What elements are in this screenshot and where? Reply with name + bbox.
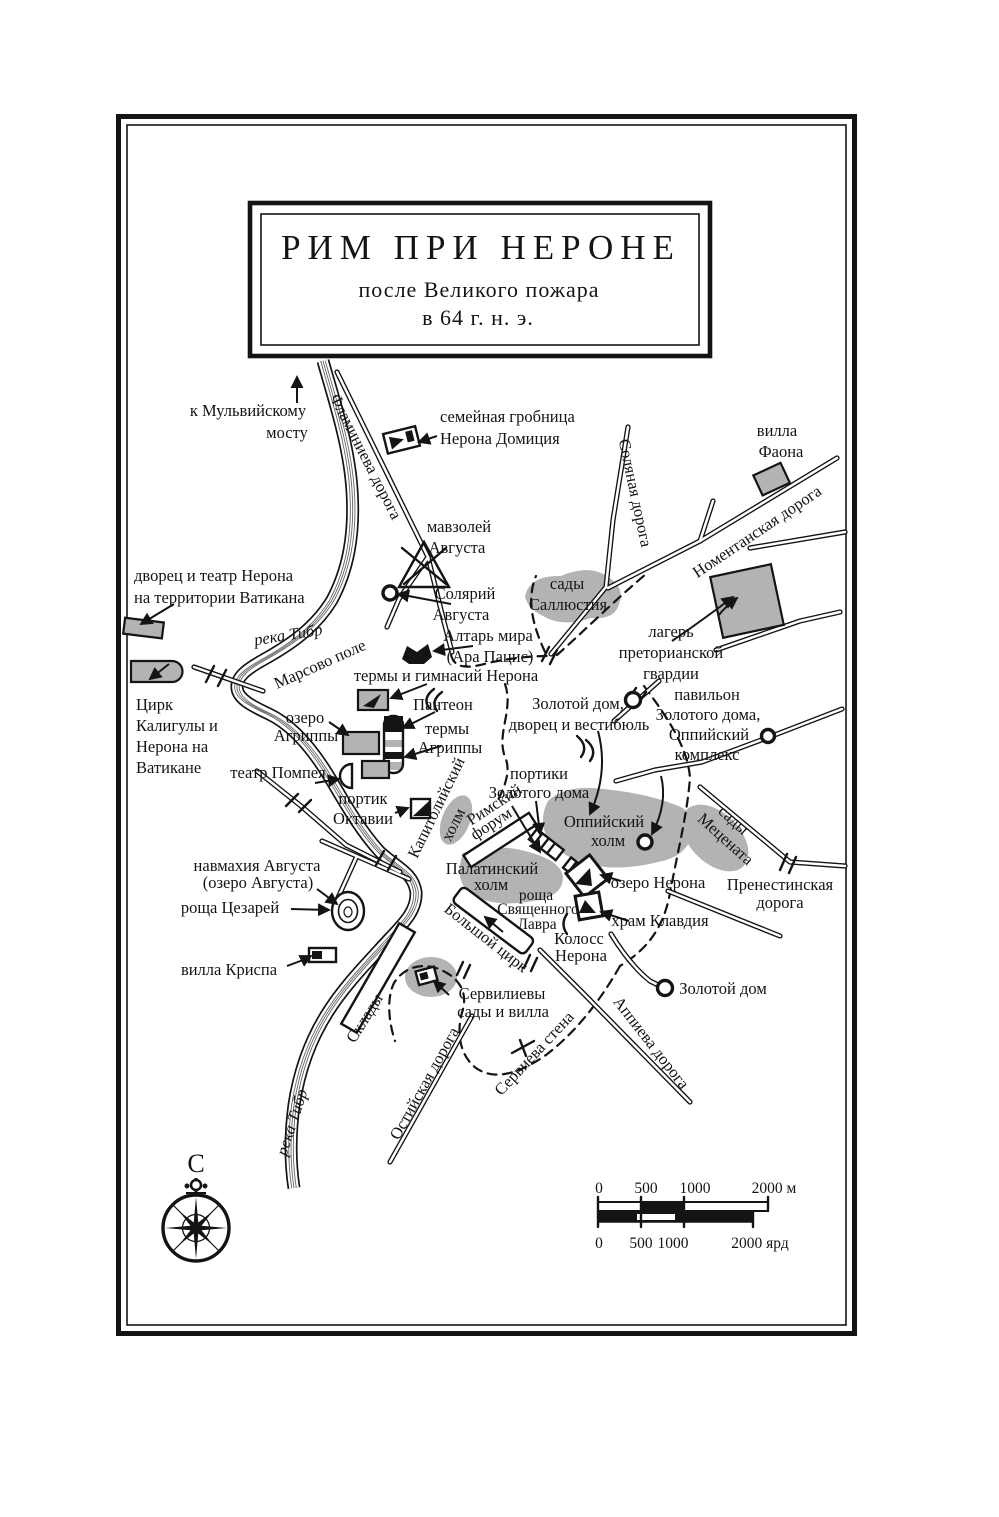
compass-finial-knob: [191, 1180, 201, 1190]
pantheon-label: Пантеон: [413, 695, 473, 714]
nero-palace-label-1: дворец и театр Нерона: [134, 566, 294, 585]
agrippa-lake-label-1: озеро: [286, 708, 325, 727]
compass-finial-left-bud: [185, 1184, 190, 1189]
agrippa-lake-basin: [343, 732, 379, 754]
villa-crispa-leader: [287, 956, 311, 966]
flaminia-road-label: Фламиниева дорога: [326, 391, 406, 523]
villa-crispa-label: вилла Криспа: [181, 960, 278, 979]
family-tomb-label-1: семейная гробница: [440, 407, 575, 426]
villa-crispa-structure: [309, 948, 336, 962]
praenestina-label-2: дорога: [756, 893, 804, 912]
scale-m-2000: 2000 м: [752, 1180, 797, 1197]
compass-rose: С: [163, 1149, 229, 1261]
octavia-portico-label-2: Октавии: [333, 809, 393, 828]
claudius-temple-label: храм Клавдия: [611, 911, 709, 930]
arch-marks-east: [577, 736, 593, 761]
scale-yd-1000: 1000: [658, 1235, 689, 1252]
golden-house-label: Золотой дом: [679, 979, 767, 998]
pavilion-label-3: Оппийский: [669, 725, 749, 744]
servilian-label-2: сады и вилла: [457, 1002, 549, 1021]
scale-yards-white-segment: [637, 1214, 675, 1220]
praetorian-camp-label-2: преторианской: [619, 643, 724, 662]
nero-baths-structure: [358, 690, 388, 710]
agrippa-baths-label-1: термы: [425, 719, 469, 738]
compass-hub: [193, 1225, 199, 1231]
caesars-grove-label: роща Цезарей: [181, 898, 280, 917]
oppian-hill-label-1: Оппийский: [564, 812, 644, 831]
octavia-portico-label-1: портик: [338, 789, 388, 808]
scale-bar: 0 500 1000 2000 м 0 500 1000 2000 ярд: [595, 1180, 796, 1252]
servilian-label-1: Сервилиевы: [459, 984, 546, 1003]
agrippa-lake-label-2: Агриппы: [274, 726, 339, 745]
mausoleum-label-2: Августа: [429, 538, 486, 557]
oppian-hill-marker: [638, 835, 652, 849]
map-page: РИМ ПРИ НЕРОНЕ после Великого пожара в 6…: [0, 0, 999, 1517]
scale-m-0: 0: [595, 1180, 603, 1197]
mausoleum-label-1: мавзолей: [427, 517, 491, 536]
title-box: РИМ ПРИ НЕРОНЕ после Великого пожара в 6…: [250, 203, 710, 356]
pavilion-label-2: Золотого дома,: [656, 705, 761, 724]
compass-north-label: С: [187, 1149, 204, 1178]
compass-finial-right-bud: [203, 1184, 208, 1189]
map-labels: к Мульвийскому мосту Фламиниева дорога с…: [134, 391, 834, 1159]
circus-caligula-structure: [131, 661, 183, 682]
nero-palace-label-2: на территории Ватикана: [134, 588, 305, 607]
golden-house-marker: [658, 981, 673, 996]
oppian-complex-marker: [762, 730, 775, 743]
solarium-marker: [383, 586, 397, 600]
naumachia-structure: [332, 892, 364, 930]
agrippa-baths-band2: [384, 752, 403, 759]
salaria-road-label: Соляная дорога: [615, 437, 657, 549]
oppian-hill-label-2: холм: [591, 831, 626, 850]
octavia-portico-leader: [395, 808, 408, 813]
scale-m-1000: 1000: [680, 1180, 711, 1197]
sallust-gardens-label-2: Саллюстия: [529, 595, 608, 614]
rome-nero-map: РИМ ПРИ НЕРОНЕ после Великого пожара в 6…: [0, 0, 999, 1517]
golden-house-road: [611, 934, 662, 987]
nero-lake-label: озеро Нерона: [611, 873, 706, 892]
map-title: РИМ ПРИ НЕРОНЕ: [281, 228, 681, 267]
pompey-portico-building: [362, 761, 389, 778]
appia-road-label: Аппиева дорога: [609, 993, 693, 1093]
villa-crispa-block: [312, 951, 322, 959]
nero-palace-vatican-structure: [123, 618, 164, 639]
scale-yd-0: 0: [595, 1235, 603, 1252]
colossus-label-2: Нерона: [555, 946, 608, 965]
sacred-grove-label-3: Лавра: [517, 916, 556, 933]
scale-m-500: 500: [634, 1180, 658, 1197]
praetorian-camp-building: [710, 564, 784, 638]
family-tomb-label-2: Нерона Домиция: [440, 429, 560, 448]
palatine-label-2: холм: [474, 875, 509, 894]
mulvian-bridge-label-1: к Мульвийскому: [190, 401, 307, 420]
vestibule-label-1: Золотой дом,: [532, 694, 624, 713]
porticoes-label-1: портики: [510, 764, 568, 783]
vestibule-label-2: дворец и вестибюль: [509, 715, 650, 734]
map-subtitle: после Великого пожара: [358, 277, 599, 302]
sallust-gardens-label-1: сады: [550, 574, 584, 593]
scale-yd-2000: 2000 ярд: [731, 1235, 789, 1252]
ara-pacis-label-1: Алтарь мира: [443, 626, 533, 645]
praetorian-camp-label-3: гвардии: [643, 664, 699, 683]
scale-yards-bar: [598, 1212, 753, 1222]
ostia-road-label: Остийская дорога: [385, 1023, 463, 1143]
vestibule-marker: [626, 693, 641, 708]
solarium-label-2: Августа: [433, 605, 490, 624]
ara-pacis-label-2: (Ара Пацис): [447, 647, 534, 666]
scale-yd-500: 500: [629, 1235, 653, 1252]
pavilion-label-1: павильон: [674, 685, 740, 704]
praetorian-camp-label-1: лагерь: [648, 622, 694, 641]
agrippa-baths-band1: [384, 740, 403, 747]
pavilion-label-4: комплекс: [675, 745, 740, 764]
circus-caligula-label-1: Цирк: [136, 695, 174, 714]
mulvian-bridge-label-2: мосту: [266, 423, 308, 442]
circus-caligula-label-3: Нерона на: [136, 737, 209, 756]
claudius-temple-structure: [575, 892, 603, 920]
tiber-river-bottom-label: река Тибр: [272, 1087, 312, 1159]
praenestina-label-1: Пренестинская: [727, 875, 834, 894]
naumachia-outer-ring: [332, 892, 364, 930]
solarium-label-1: Солярий: [435, 584, 496, 603]
agrippa-baths-label-2: Агриппы: [418, 738, 483, 757]
nero-baths-label: термы и гимнасий Нерона: [354, 666, 539, 685]
pompey-theater-building: [340, 764, 352, 788]
caesars-grove-leader: [291, 909, 329, 910]
circus-caligula-stadium: [131, 661, 183, 682]
map-subtitle-year: в 64 г. н. э.: [422, 305, 534, 330]
circus-gate-marks: [457, 962, 470, 978]
scale-meters-filled-segment: [641, 1202, 684, 1211]
circus-caligula-label-2: Калигулы и: [136, 716, 218, 735]
nero-palace-vatican-building: [123, 618, 164, 639]
family-tomb-structure: [383, 426, 420, 453]
circus-caligula-label-4: Ватикане: [136, 758, 201, 777]
naumachia-label-2: (озеро Августа): [203, 873, 314, 892]
pompey-theater-structure: [340, 761, 389, 788]
villa-phaon-label-1: вилла: [757, 421, 798, 440]
family-tomb-leader: [419, 436, 437, 442]
naumachia-leader: [317, 889, 337, 904]
villa-phaon-label-2: Фаона: [759, 442, 804, 461]
pompey-theater-label: театр Помпея: [230, 763, 326, 782]
ara-pacis-altar: [402, 644, 432, 664]
